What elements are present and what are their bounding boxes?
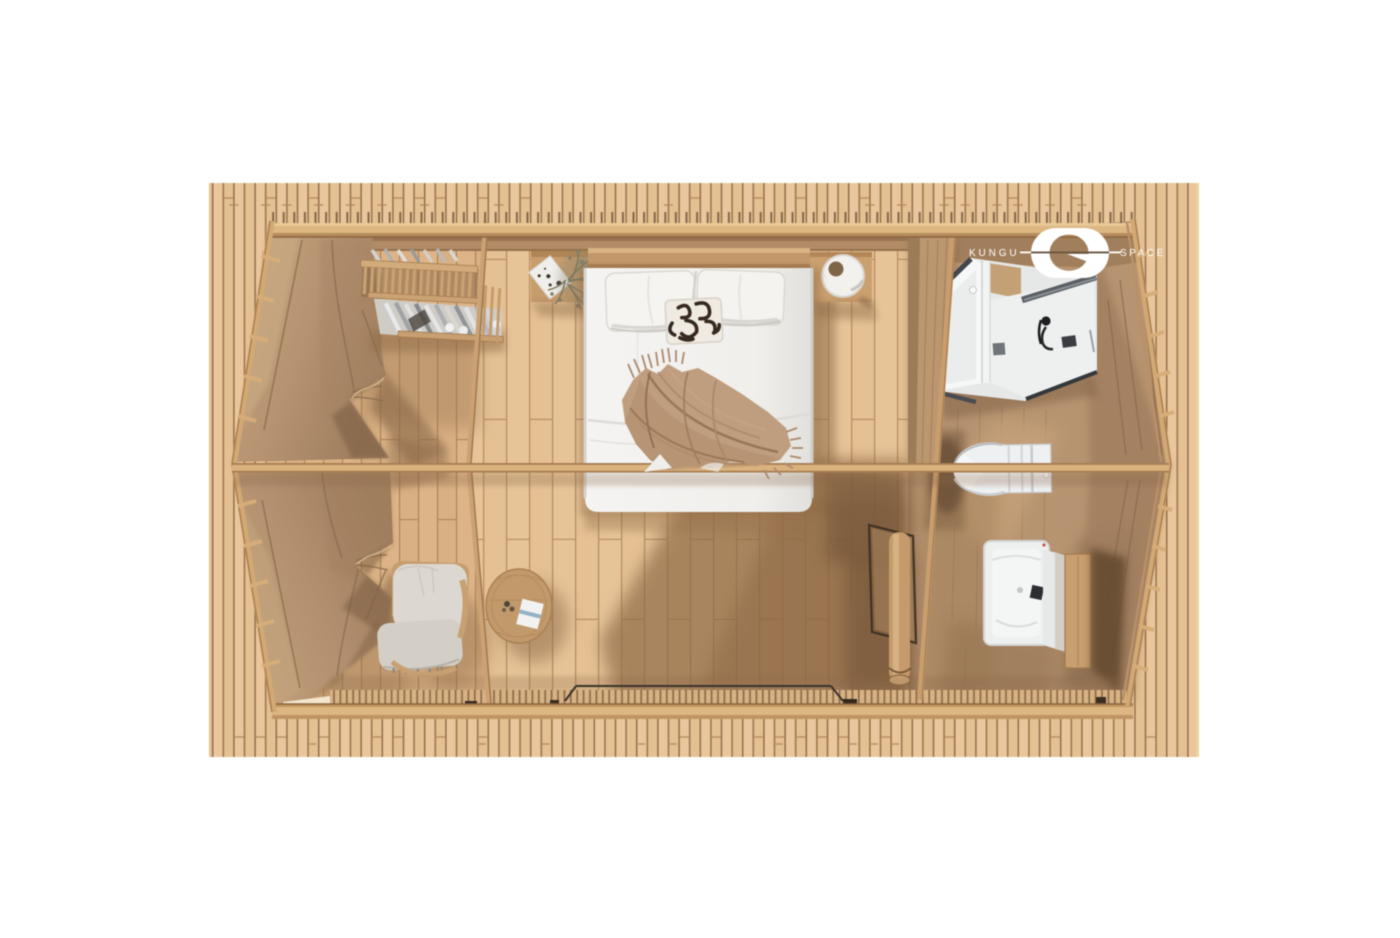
svg-text:KUNGU: KUNGU: [969, 248, 1021, 259]
svg-text:SPACE: SPACE: [1120, 248, 1167, 259]
